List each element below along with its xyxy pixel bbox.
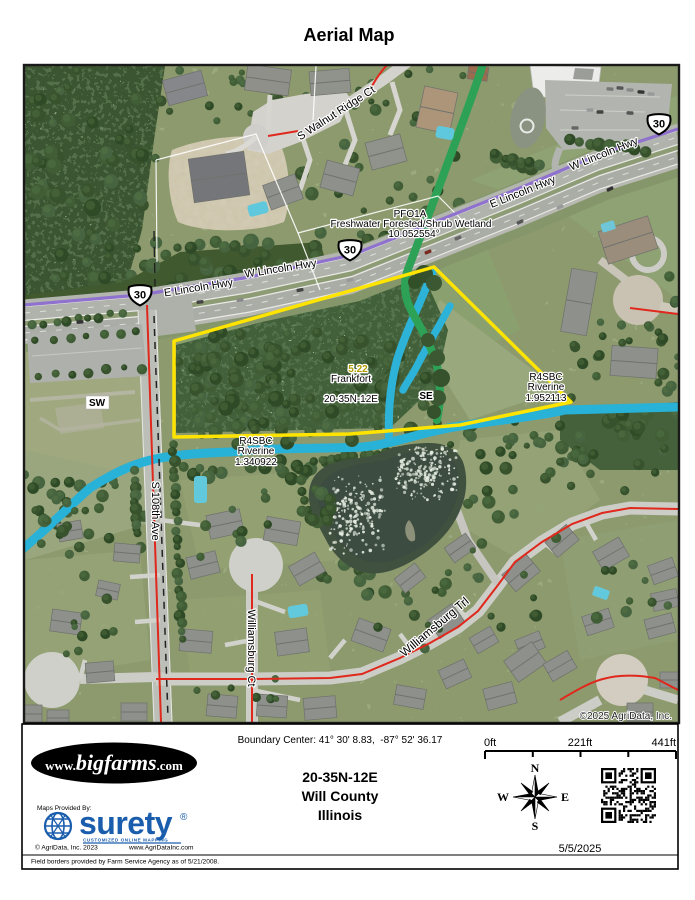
svg-text:N: N bbox=[531, 761, 540, 775]
svg-text:E: E bbox=[561, 790, 569, 804]
svg-text:0ft: 0ft bbox=[484, 737, 496, 749]
svg-text:S 108th Ave: S 108th Ave bbox=[149, 481, 161, 540]
svg-text:Riverine: Riverine bbox=[238, 446, 275, 457]
svg-text:Illinois: Illinois bbox=[318, 807, 363, 823]
svg-text:W: W bbox=[497, 790, 509, 804]
svg-text:30: 30 bbox=[653, 119, 665, 131]
svg-text:Riverine: Riverine bbox=[528, 382, 565, 393]
svg-text:Aerial Map: Aerial Map bbox=[303, 25, 394, 45]
svg-text:20-35N-12E: 20-35N-12E bbox=[324, 394, 378, 405]
svg-text:1:952113: 1:952113 bbox=[526, 393, 567, 404]
svg-text:Frankfort: Frankfort bbox=[331, 374, 371, 385]
svg-text:221ft: 221ft bbox=[568, 737, 592, 749]
svg-text:Field borders provided by Farm: Field borders provided by Farm Service A… bbox=[31, 859, 219, 866]
svg-text:Boundary Center: 41° 30' 8.83,: Boundary Center: 41° 30' 8.83, -87° 52' … bbox=[238, 735, 443, 746]
svg-text:20-35N-12E: 20-35N-12E bbox=[302, 769, 378, 785]
svg-text:©2025 AgriData, Inc.: ©2025 AgriData, Inc. bbox=[580, 711, 672, 722]
svg-text:surety: surety bbox=[79, 805, 173, 841]
svg-text:30: 30 bbox=[134, 290, 146, 302]
svg-text:CUSTOMIZED ONLINE MAPPING: CUSTOMIZED ONLINE MAPPING bbox=[83, 838, 168, 843]
svg-text:S: S bbox=[532, 819, 539, 833]
svg-text:www.AgriDataInc.com: www.AgriDataInc.com bbox=[128, 845, 194, 852]
svg-text:Will County: Will County bbox=[302, 788, 379, 804]
svg-text:441ft: 441ft bbox=[652, 737, 676, 749]
svg-text:Williamsburg Ct: Williamsburg Ct bbox=[245, 609, 257, 686]
svg-text:®: ® bbox=[180, 812, 188, 823]
svg-text:SE: SE bbox=[419, 391, 433, 402]
svg-text:© AgriData, Inc. 2023: © AgriData, Inc. 2023 bbox=[35, 844, 98, 852]
svg-text:30: 30 bbox=[344, 245, 356, 257]
svg-text:SW: SW bbox=[89, 398, 106, 409]
svg-text:1:340922: 1:340922 bbox=[235, 457, 277, 468]
svg-text:5/5/2025: 5/5/2025 bbox=[559, 843, 602, 855]
svg-text:10.052554°: 10.052554° bbox=[388, 229, 439, 240]
